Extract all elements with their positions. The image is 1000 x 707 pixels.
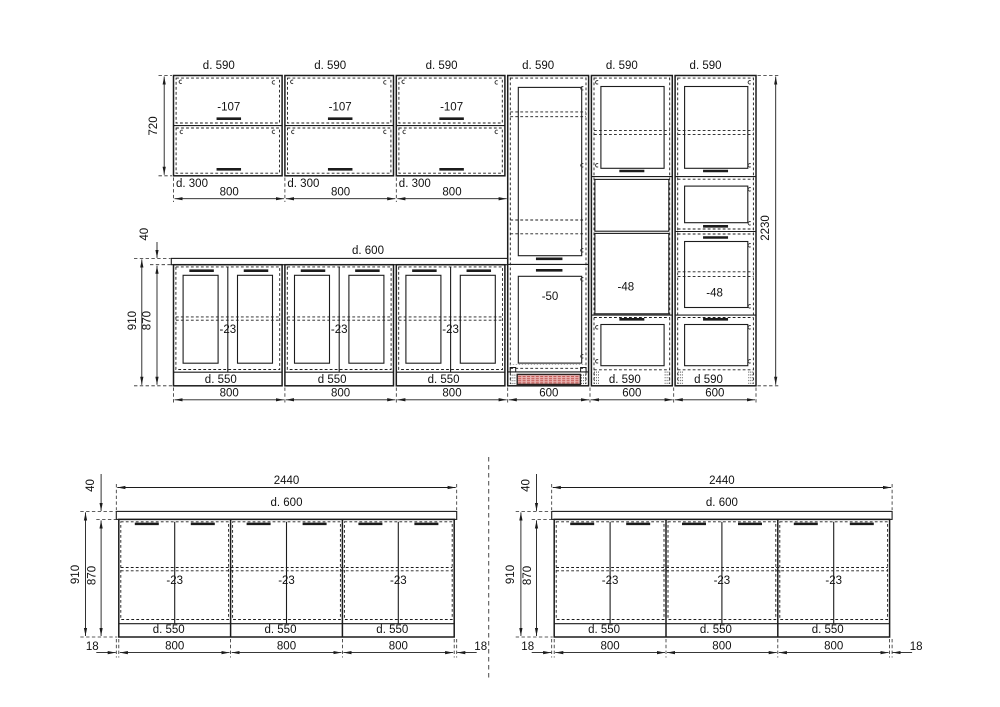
svg-text:800: 800: [712, 640, 731, 652]
svg-text:18: 18: [86, 641, 99, 653]
svg-text:d. 590: d. 590: [426, 60, 458, 72]
svg-text:-23: -23: [825, 575, 842, 587]
svg-text:40: 40: [139, 228, 151, 241]
svg-text:d 550: d 550: [318, 374, 347, 386]
svg-text:d. 590: d. 590: [609, 374, 641, 386]
svg-text:d 590: d 590: [694, 374, 723, 386]
svg-text:-23: -23: [714, 575, 731, 587]
svg-text:d. 550: d. 550: [812, 624, 844, 636]
svg-text:d. 550: d. 550: [428, 374, 460, 386]
svg-text:800: 800: [331, 186, 350, 198]
svg-text:-107: -107: [329, 102, 352, 114]
svg-text:-23: -23: [278, 575, 295, 587]
svg-text:800: 800: [442, 186, 461, 198]
svg-text:2230: 2230: [760, 215, 772, 241]
svg-text:d. 550: d. 550: [700, 624, 732, 636]
svg-text:800: 800: [220, 388, 239, 400]
svg-text:d. 590: d. 590: [606, 60, 638, 72]
svg-text:-107: -107: [217, 102, 240, 114]
svg-text:910: 910: [505, 565, 517, 584]
svg-text:800: 800: [824, 640, 843, 652]
svg-text:d. 600: d. 600: [352, 245, 384, 257]
svg-text:870: 870: [87, 566, 99, 585]
svg-text:18: 18: [910, 641, 923, 653]
svg-text:-107: -107: [440, 102, 463, 114]
svg-text:d. 590: d. 590: [203, 60, 235, 72]
svg-text:600: 600: [622, 388, 641, 400]
svg-text:-48: -48: [706, 288, 723, 300]
svg-text:800: 800: [277, 640, 296, 652]
svg-text:-48: -48: [618, 282, 635, 294]
svg-text:18: 18: [474, 641, 487, 653]
svg-text:40: 40: [85, 479, 97, 492]
svg-text:600: 600: [539, 388, 558, 400]
svg-text:40: 40: [520, 479, 532, 492]
svg-text:910: 910: [127, 311, 139, 330]
svg-text:-23: -23: [442, 324, 459, 336]
svg-text:d. 590: d. 590: [314, 60, 346, 72]
svg-text:2440: 2440: [274, 475, 300, 487]
svg-text:720: 720: [148, 116, 160, 135]
svg-text:800: 800: [601, 640, 620, 652]
svg-text:18: 18: [521, 641, 534, 653]
svg-text:800: 800: [165, 640, 184, 652]
svg-text:870: 870: [142, 311, 154, 330]
svg-text:d. 550: d. 550: [265, 624, 297, 636]
svg-text:d. 300: d. 300: [176, 178, 208, 190]
svg-text:-23: -23: [219, 324, 236, 336]
svg-text:d. 300: d. 300: [287, 178, 319, 190]
svg-text:-23: -23: [166, 575, 183, 587]
svg-text:800: 800: [389, 640, 408, 652]
svg-text:d. 550: d. 550: [153, 624, 185, 636]
svg-text:800: 800: [220, 186, 239, 198]
svg-text:d. 550: d. 550: [376, 624, 408, 636]
svg-text:d. 300: d. 300: [399, 178, 431, 190]
svg-text:d. 550: d. 550: [205, 374, 237, 386]
svg-text:870: 870: [522, 566, 534, 585]
svg-text:d. 590: d. 590: [522, 60, 554, 72]
svg-text:d. 600: d. 600: [706, 497, 738, 509]
svg-text:2440: 2440: [709, 475, 735, 487]
svg-text:d. 600: d. 600: [271, 497, 303, 509]
svg-text:800: 800: [442, 388, 461, 400]
svg-text:910: 910: [70, 565, 82, 584]
svg-text:-23: -23: [331, 324, 348, 336]
svg-text:-50: -50: [542, 291, 559, 303]
svg-text:d. 590: d. 590: [690, 60, 722, 72]
svg-text:-23: -23: [390, 575, 407, 587]
svg-text:-23: -23: [602, 575, 619, 587]
svg-text:d. 550: d. 550: [588, 624, 620, 636]
svg-text:600: 600: [705, 388, 724, 400]
svg-text:800: 800: [331, 388, 350, 400]
